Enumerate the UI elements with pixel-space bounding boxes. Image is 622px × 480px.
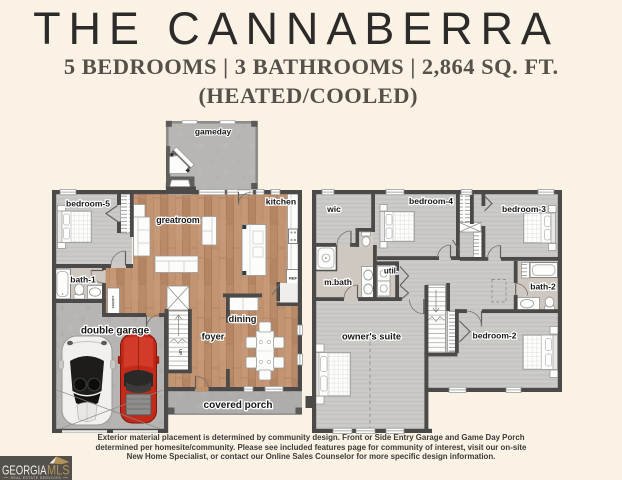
svg-text:bedroom-5: bedroom-5: [66, 199, 110, 209]
svg-text:double garage: double garage: [81, 326, 150, 337]
svg-text:bedroom-2: bedroom-2: [473, 331, 517, 341]
svg-text:owner's suite: owner's suite: [342, 332, 401, 342]
svg-text:dining: dining: [229, 314, 257, 324]
svg-text:m.bath: m.bath: [324, 277, 352, 287]
svg-text:REF: REF: [289, 276, 298, 281]
svg-text:gameday: gameday: [195, 127, 232, 137]
svg-text:kitchen: kitchen: [266, 197, 296, 207]
svg-text:cubbies: cubbies: [111, 296, 115, 309]
svg-text:REAL ESTATE SERVICES: REAL ESTATE SERVICES: [11, 476, 62, 480]
svg-text:bedroom-4: bedroom-4: [409, 196, 453, 206]
svg-text:bath-2: bath-2: [530, 282, 556, 292]
svg-text:UP: UP: [178, 349, 183, 355]
svg-text:util.: util.: [384, 267, 398, 276]
svg-text:bedroom-3: bedroom-3: [502, 204, 546, 214]
svg-text:covered porch: covered porch: [204, 400, 273, 411]
svg-text:foyer: foyer: [202, 332, 225, 342]
svg-text:wic: wic: [326, 204, 341, 214]
svg-text:bath-1: bath-1: [70, 275, 96, 285]
svg-text:greatroom: greatroom: [156, 215, 200, 225]
